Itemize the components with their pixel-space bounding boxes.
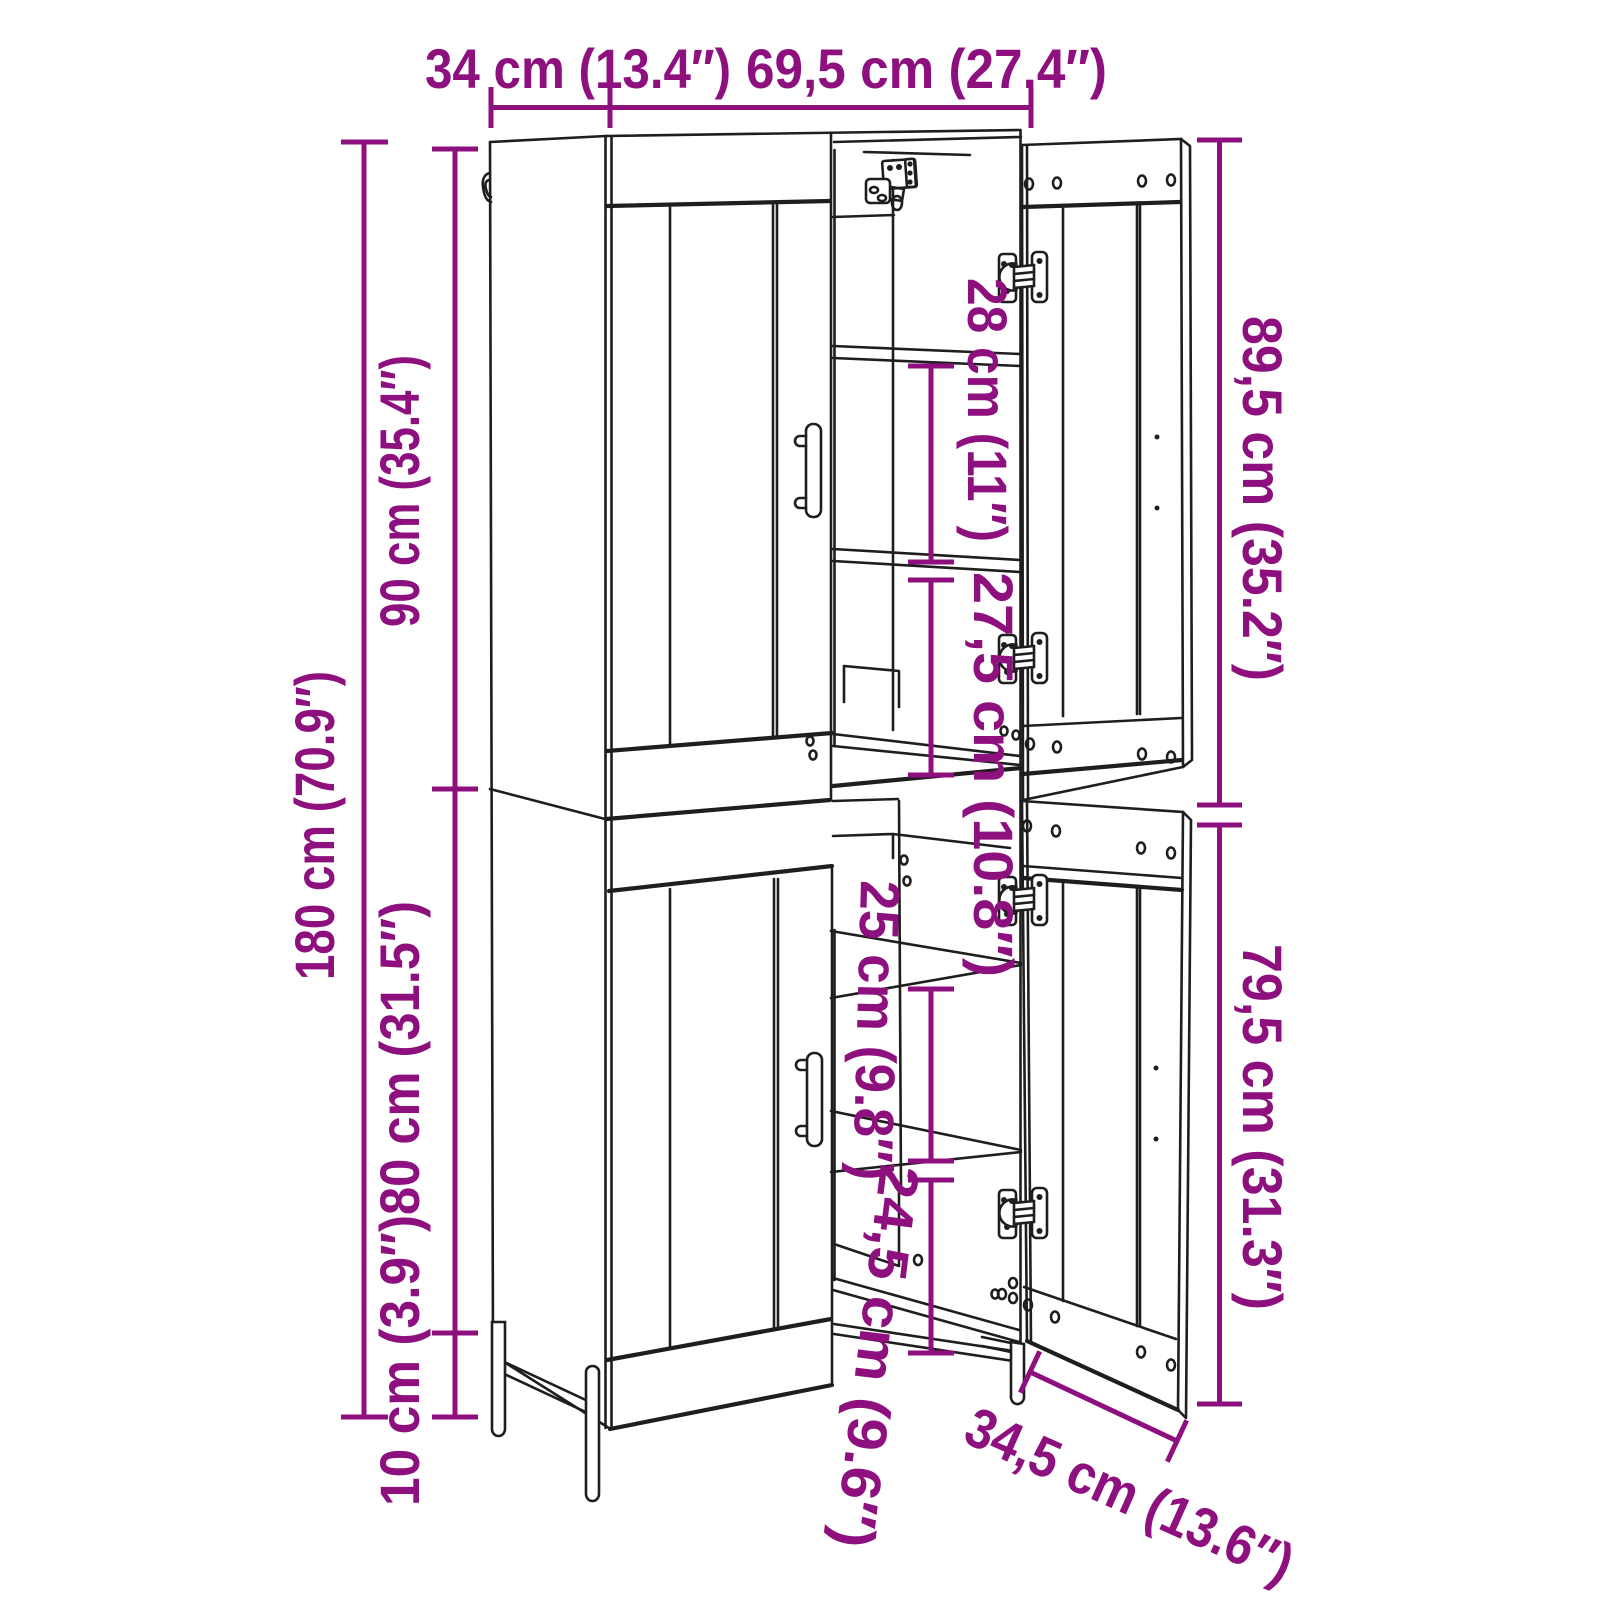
svg-text:80 cm (31.5″): 80 cm (31.5″)	[368, 901, 431, 1215]
svg-text:69,5 cm (27.4″): 69,5 cm (27.4″)	[746, 37, 1107, 100]
svg-text:10 cm (3.9″): 10 cm (3.9″)	[368, 1215, 431, 1506]
svg-text:90 cm (35.4″): 90 cm (35.4″)	[368, 355, 431, 627]
svg-text:28 cm (11″): 28 cm (11″)	[956, 278, 1019, 542]
svg-text:34 cm (13.4″): 34 cm (13.4″)	[425, 37, 731, 100]
svg-text:79,5 cm (31.3″): 79,5 cm (31.3″)	[1231, 944, 1294, 1310]
svg-text:27,5 cm (10.8″): 27,5 cm (10.8″)	[962, 572, 1025, 977]
svg-text:25 cm (9.8″): 25 cm (9.8″)	[841, 880, 912, 1182]
svg-text:180 cm (70.9″): 180 cm (70.9″)	[283, 671, 346, 980]
svg-text:89,5 cm (35.2″): 89,5 cm (35.2″)	[1231, 316, 1294, 681]
